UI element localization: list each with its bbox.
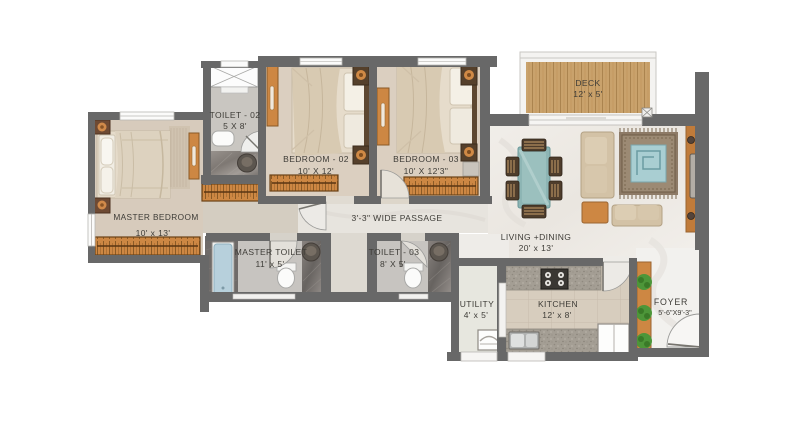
svg-text:10' X 12': 10' X 12': [298, 166, 334, 176]
svg-text:5'-6"X9'-3": 5'-6"X9'-3": [658, 308, 692, 317]
svg-text:4' x 5': 4' x 5': [464, 310, 488, 320]
svg-text:MASTER TOILET: MASTER TOILET: [235, 247, 307, 257]
svg-text:8' X 5': 8' X 5': [380, 259, 406, 269]
svg-text:12' x 5': 12' x 5': [573, 89, 603, 99]
svg-text:BEDROOM - 02: BEDROOM - 02: [283, 154, 349, 164]
svg-text:10' X 12'3": 10' X 12'3": [404, 166, 449, 176]
svg-text:3'-3" WIDE PASSAGE: 3'-3" WIDE PASSAGE: [351, 213, 442, 223]
svg-text:UTILITY: UTILITY: [460, 299, 494, 309]
svg-text:TOILET - 03: TOILET - 03: [369, 247, 420, 257]
svg-text:LIVING +DINING: LIVING +DINING: [501, 232, 572, 242]
svg-text:11' x 5': 11' x 5': [256, 259, 285, 269]
svg-text:12' x 8': 12' x 8': [542, 310, 572, 320]
svg-text:20' x 13': 20' x 13': [519, 243, 554, 253]
svg-text:DECK: DECK: [575, 78, 600, 88]
svg-text:KITCHEN: KITCHEN: [538, 299, 578, 309]
svg-text:TOILET - 02: TOILET - 02: [210, 110, 261, 120]
svg-text:FOYER: FOYER: [654, 297, 688, 307]
svg-text:MASTER BEDROOM: MASTER BEDROOM: [113, 212, 198, 222]
svg-text:BEDROOM - 03: BEDROOM - 03: [393, 154, 459, 164]
svg-text:5 X 8': 5 X 8': [223, 121, 247, 131]
svg-text:10' x 13': 10' x 13': [136, 228, 171, 238]
